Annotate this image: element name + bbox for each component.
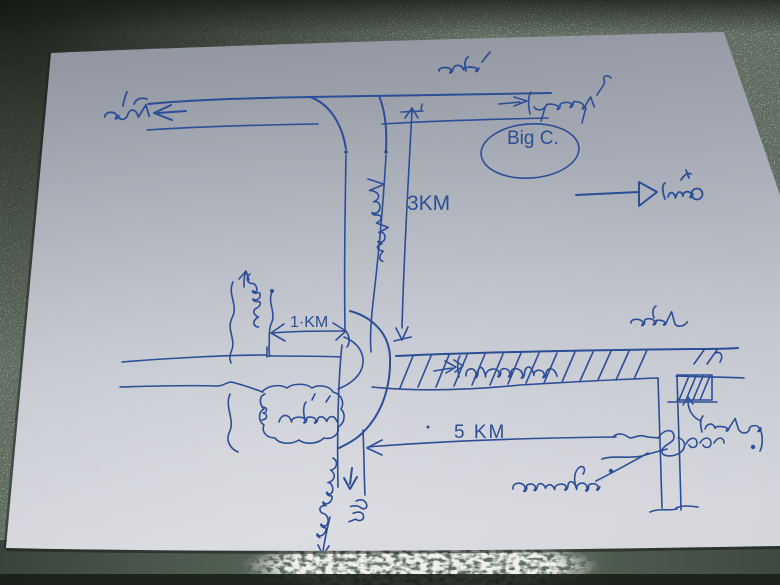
svg-text:3KM: 3KM	[407, 192, 450, 215]
svg-text:5 KM: 5 KM	[454, 422, 506, 443]
svg-text:Big C.: Big C.	[507, 128, 559, 149]
svg-text:1·KM: 1·KM	[290, 314, 328, 331]
